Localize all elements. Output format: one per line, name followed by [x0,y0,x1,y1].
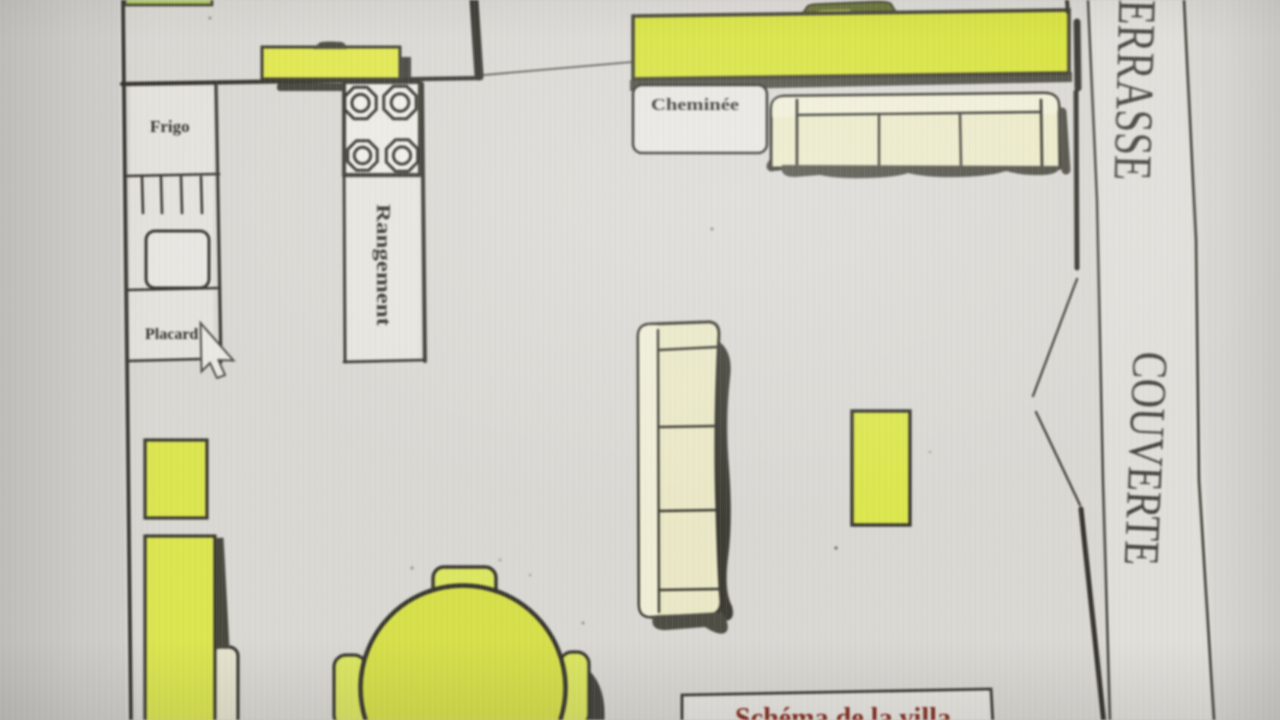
svg-text:Rangement: Rangement [372,204,394,326]
svg-text:Cheminée: Cheminée [651,95,740,114]
svg-text:Placard: Placard [145,326,198,343]
svg-text:Schéma de la villa: Schéma de la villa [735,703,951,720]
svg-text:Frigo: Frigo [150,117,190,136]
svg-text:TERRASSE: TERRASSE [1103,0,1168,181]
svg-text:COUVERTE: COUVERTE [1114,351,1179,567]
